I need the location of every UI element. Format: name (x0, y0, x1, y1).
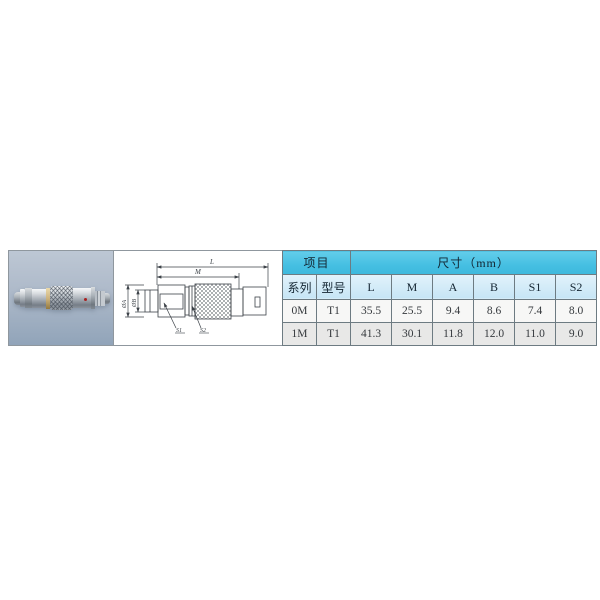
cell-M: 30.1 (392, 323, 433, 346)
col-header-S2: S2 (556, 274, 597, 300)
label-S2: S2 (200, 328, 206, 334)
label-dim-dia-B: ØB (132, 299, 138, 308)
cell-S1: 11.0 (515, 323, 556, 346)
cell-S2: 8.0 (556, 300, 597, 323)
label-dim-M: M (194, 268, 202, 276)
connector-photo (14, 286, 110, 310)
table-row-1M: 1M T1 41.3 30.1 11.8 12.0 11.0 9.0 (283, 323, 597, 346)
header-dimensions: 尺寸（mm） (351, 251, 597, 275)
cell-model: T1 (317, 300, 351, 323)
label-S1: S1 (176, 328, 182, 334)
connector-tail (105, 293, 110, 304)
col-header-B: B (474, 274, 515, 300)
connector-cable-end (95, 291, 105, 306)
product-photo-panel (8, 250, 114, 346)
label-dim-dia-A: ØA (122, 300, 128, 309)
cell-series: 1M (283, 323, 317, 346)
dimension-drawing: L M ØA ØB (114, 251, 282, 345)
red-index-dot (84, 298, 87, 301)
col-header-S1: S1 (515, 274, 556, 300)
cell-M: 25.5 (392, 300, 433, 323)
label-dim-L: L (209, 258, 214, 266)
table-group-header-row: 项目 尺寸（mm） (283, 251, 597, 275)
cell-B: 8.6 (474, 300, 515, 323)
col-header-A: A (433, 274, 474, 300)
datasheet-band: L M ØA ØB (8, 250, 596, 346)
leader-S1: S1 (164, 303, 185, 334)
table-column-header-row: 系列 型号 L M A B S1 S2 (283, 274, 597, 300)
cell-A: 9.4 (433, 300, 474, 323)
col-header-series: 系列 (283, 274, 317, 300)
technical-drawing-panel: L M ØA ØB (114, 250, 282, 346)
cell-series: 0M (283, 300, 317, 323)
cell-S2: 9.0 (556, 323, 597, 346)
connector-knurled-grip (50, 286, 73, 310)
table-row-0M: 0M T1 35.5 25.5 9.4 8.6 7.4 8.0 (283, 300, 597, 323)
cell-L: 35.5 (351, 300, 392, 323)
col-header-M: M (392, 274, 433, 300)
col-header-L: L (351, 274, 392, 300)
cell-model: T1 (317, 323, 351, 346)
connector-barrel (73, 288, 91, 308)
cell-L: 41.3 (351, 323, 392, 346)
dim-line-L (157, 263, 268, 287)
connector-outline (145, 284, 266, 319)
col-header-model: 型号 (317, 274, 351, 300)
connector-body (32, 289, 46, 308)
spec-table: 项目 尺寸（mm） 系列 型号 L M A B S1 S2 0M T1 35.5… (282, 250, 597, 346)
header-item: 项目 (283, 251, 351, 275)
connector-front-ring (25, 288, 32, 308)
cell-A: 11.8 (433, 323, 474, 346)
cell-B: 12.0 (474, 323, 515, 346)
cell-S1: 7.4 (515, 300, 556, 323)
